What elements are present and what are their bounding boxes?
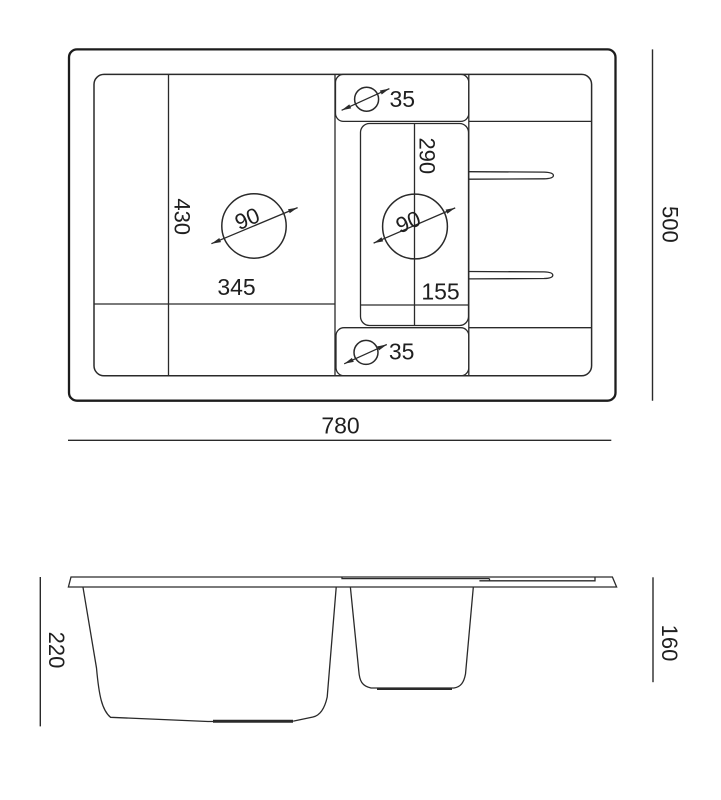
svg-text:35: 35 (389, 338, 415, 364)
svg-text:160: 160 (657, 625, 682, 662)
svg-text:155: 155 (421, 279, 459, 305)
svg-text:430: 430 (169, 198, 194, 235)
svg-text:290: 290 (415, 137, 440, 174)
svg-text:35: 35 (390, 86, 416, 112)
svg-text:500: 500 (657, 206, 682, 243)
svg-text:780: 780 (321, 413, 359, 439)
svg-text:345: 345 (217, 274, 255, 300)
svg-text:220: 220 (44, 632, 69, 669)
